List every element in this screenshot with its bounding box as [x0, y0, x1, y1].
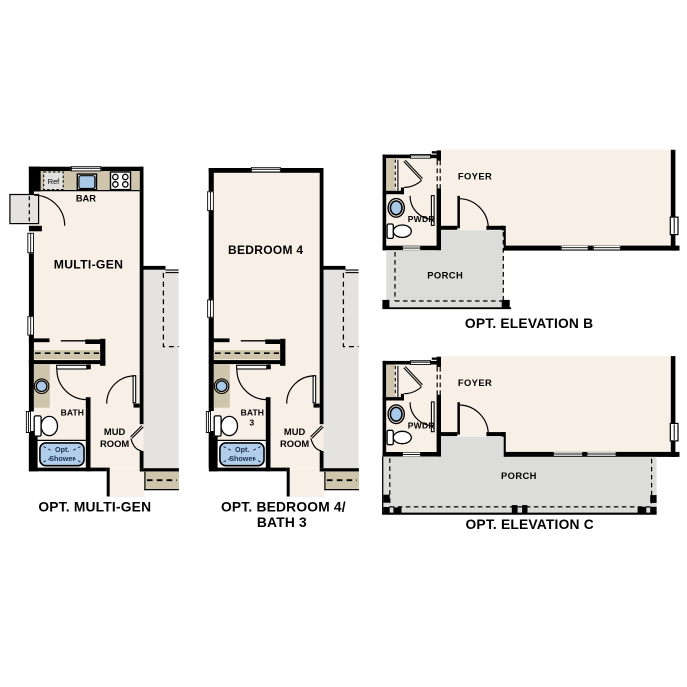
svg-text:BATH: BATH — [241, 407, 264, 417]
svg-text:FOYER: FOYER — [458, 171, 492, 182]
svg-text:BATH: BATH — [61, 407, 84, 417]
svg-text:BAR: BAR — [76, 194, 96, 204]
svg-text:BATH 3: BATH 3 — [257, 515, 307, 530]
svg-text:Shower: Shower — [229, 454, 255, 463]
svg-text:PORCH: PORCH — [427, 269, 463, 280]
svg-text:BEDROOM 4: BEDROOM 4 — [228, 243, 303, 257]
svg-text:OPT. MULTI-GEN: OPT. MULTI-GEN — [38, 500, 151, 515]
svg-text:FOYER: FOYER — [458, 377, 492, 388]
svg-text:Opt.: Opt. — [235, 445, 249, 454]
svg-text:OPT. BEDROOM 4/: OPT. BEDROOM 4/ — [221, 500, 346, 515]
svg-text:PWDR: PWDR — [408, 421, 435, 431]
svg-text:MUD: MUD — [284, 426, 306, 437]
svg-text:PWDR: PWDR — [408, 214, 435, 224]
svg-text:MUD: MUD — [104, 426, 126, 437]
svg-text:PORCH: PORCH — [501, 470, 537, 481]
svg-text:Opt.: Opt. — [55, 445, 69, 454]
svg-text:OPT. ELEVATION B: OPT. ELEVATION B — [465, 316, 593, 331]
svg-text:Shower: Shower — [49, 454, 75, 463]
svg-text:Ref: Ref — [48, 177, 60, 186]
svg-text:OPT. ELEVATION C: OPT. ELEVATION C — [465, 517, 593, 532]
svg-text:ROOM: ROOM — [100, 438, 129, 449]
svg-text:ROOM: ROOM — [280, 438, 309, 449]
svg-text:3: 3 — [249, 418, 254, 428]
svg-text:MULTI-GEN: MULTI-GEN — [54, 258, 124, 272]
